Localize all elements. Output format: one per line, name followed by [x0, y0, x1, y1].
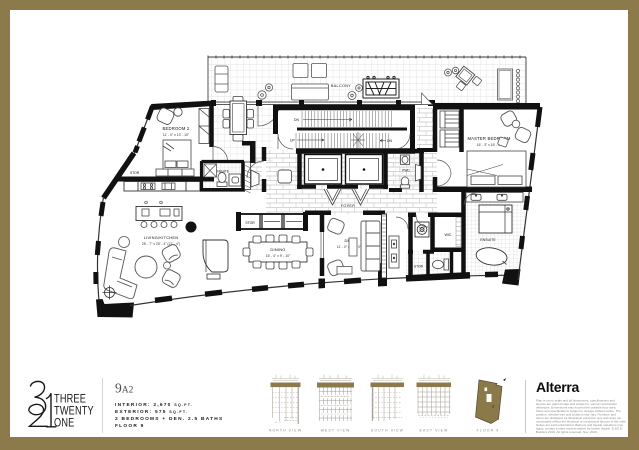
svg-text:11' - 0" x 13' - 10": 11' - 0" x 13' - 10" [163, 133, 190, 137]
svg-text:Alterra: Alterra [536, 379, 580, 395]
svg-text:SOUTH VIEW: SOUTH VIEW [371, 429, 404, 433]
svg-text:STOR: STOR [414, 265, 423, 269]
svg-text:PWD: PWD [402, 169, 410, 173]
svg-text:Builders 2019. All rights rese: Builders 2019. All rights reserved. Nov.… [536, 430, 598, 434]
svg-text:NORTH VIEW: NORTH VIEW [269, 429, 302, 433]
svg-text:FOYER: FOYER [341, 204, 356, 208]
svg-text:DN: DN [387, 139, 392, 143]
svg-text:STOR: STOR [245, 221, 255, 225]
svg-text:ONE: ONE [54, 416, 74, 429]
svg-text:2 BEDROOMS + DEN. 2.5 BATHS: 2 BEDROOMS + DEN. 2.5 BATHS [115, 416, 223, 422]
svg-text:16' - 4" x 9' - 10": 16' - 4" x 9' - 10" [266, 254, 291, 258]
svg-text:UP: UP [290, 139, 295, 143]
svg-text:WEST VIEW: WEST VIEW [321, 429, 351, 433]
svg-text:EAST VIEW: EAST VIEW [420, 429, 449, 433]
svg-text:STOR: STOR [130, 171, 140, 175]
svg-text:ENSUITE: ENSUITE [480, 238, 496, 242]
svg-text:BEDROOM 2: BEDROOM 2 [163, 126, 190, 131]
svg-text:FLOOR 9: FLOOR 9 [477, 429, 500, 433]
svg-text:BALCONY: BALCONY [331, 84, 351, 88]
svg-text:WIC: WIC [445, 233, 452, 237]
svg-text:DN: DN [294, 118, 299, 122]
svg-text:DINING: DINING [270, 247, 285, 252]
svg-text:FLOOR 9: FLOOR 9 [115, 423, 145, 429]
svg-text:LIVING/KITCHEN: LIVING/KITCHEN [144, 235, 179, 240]
